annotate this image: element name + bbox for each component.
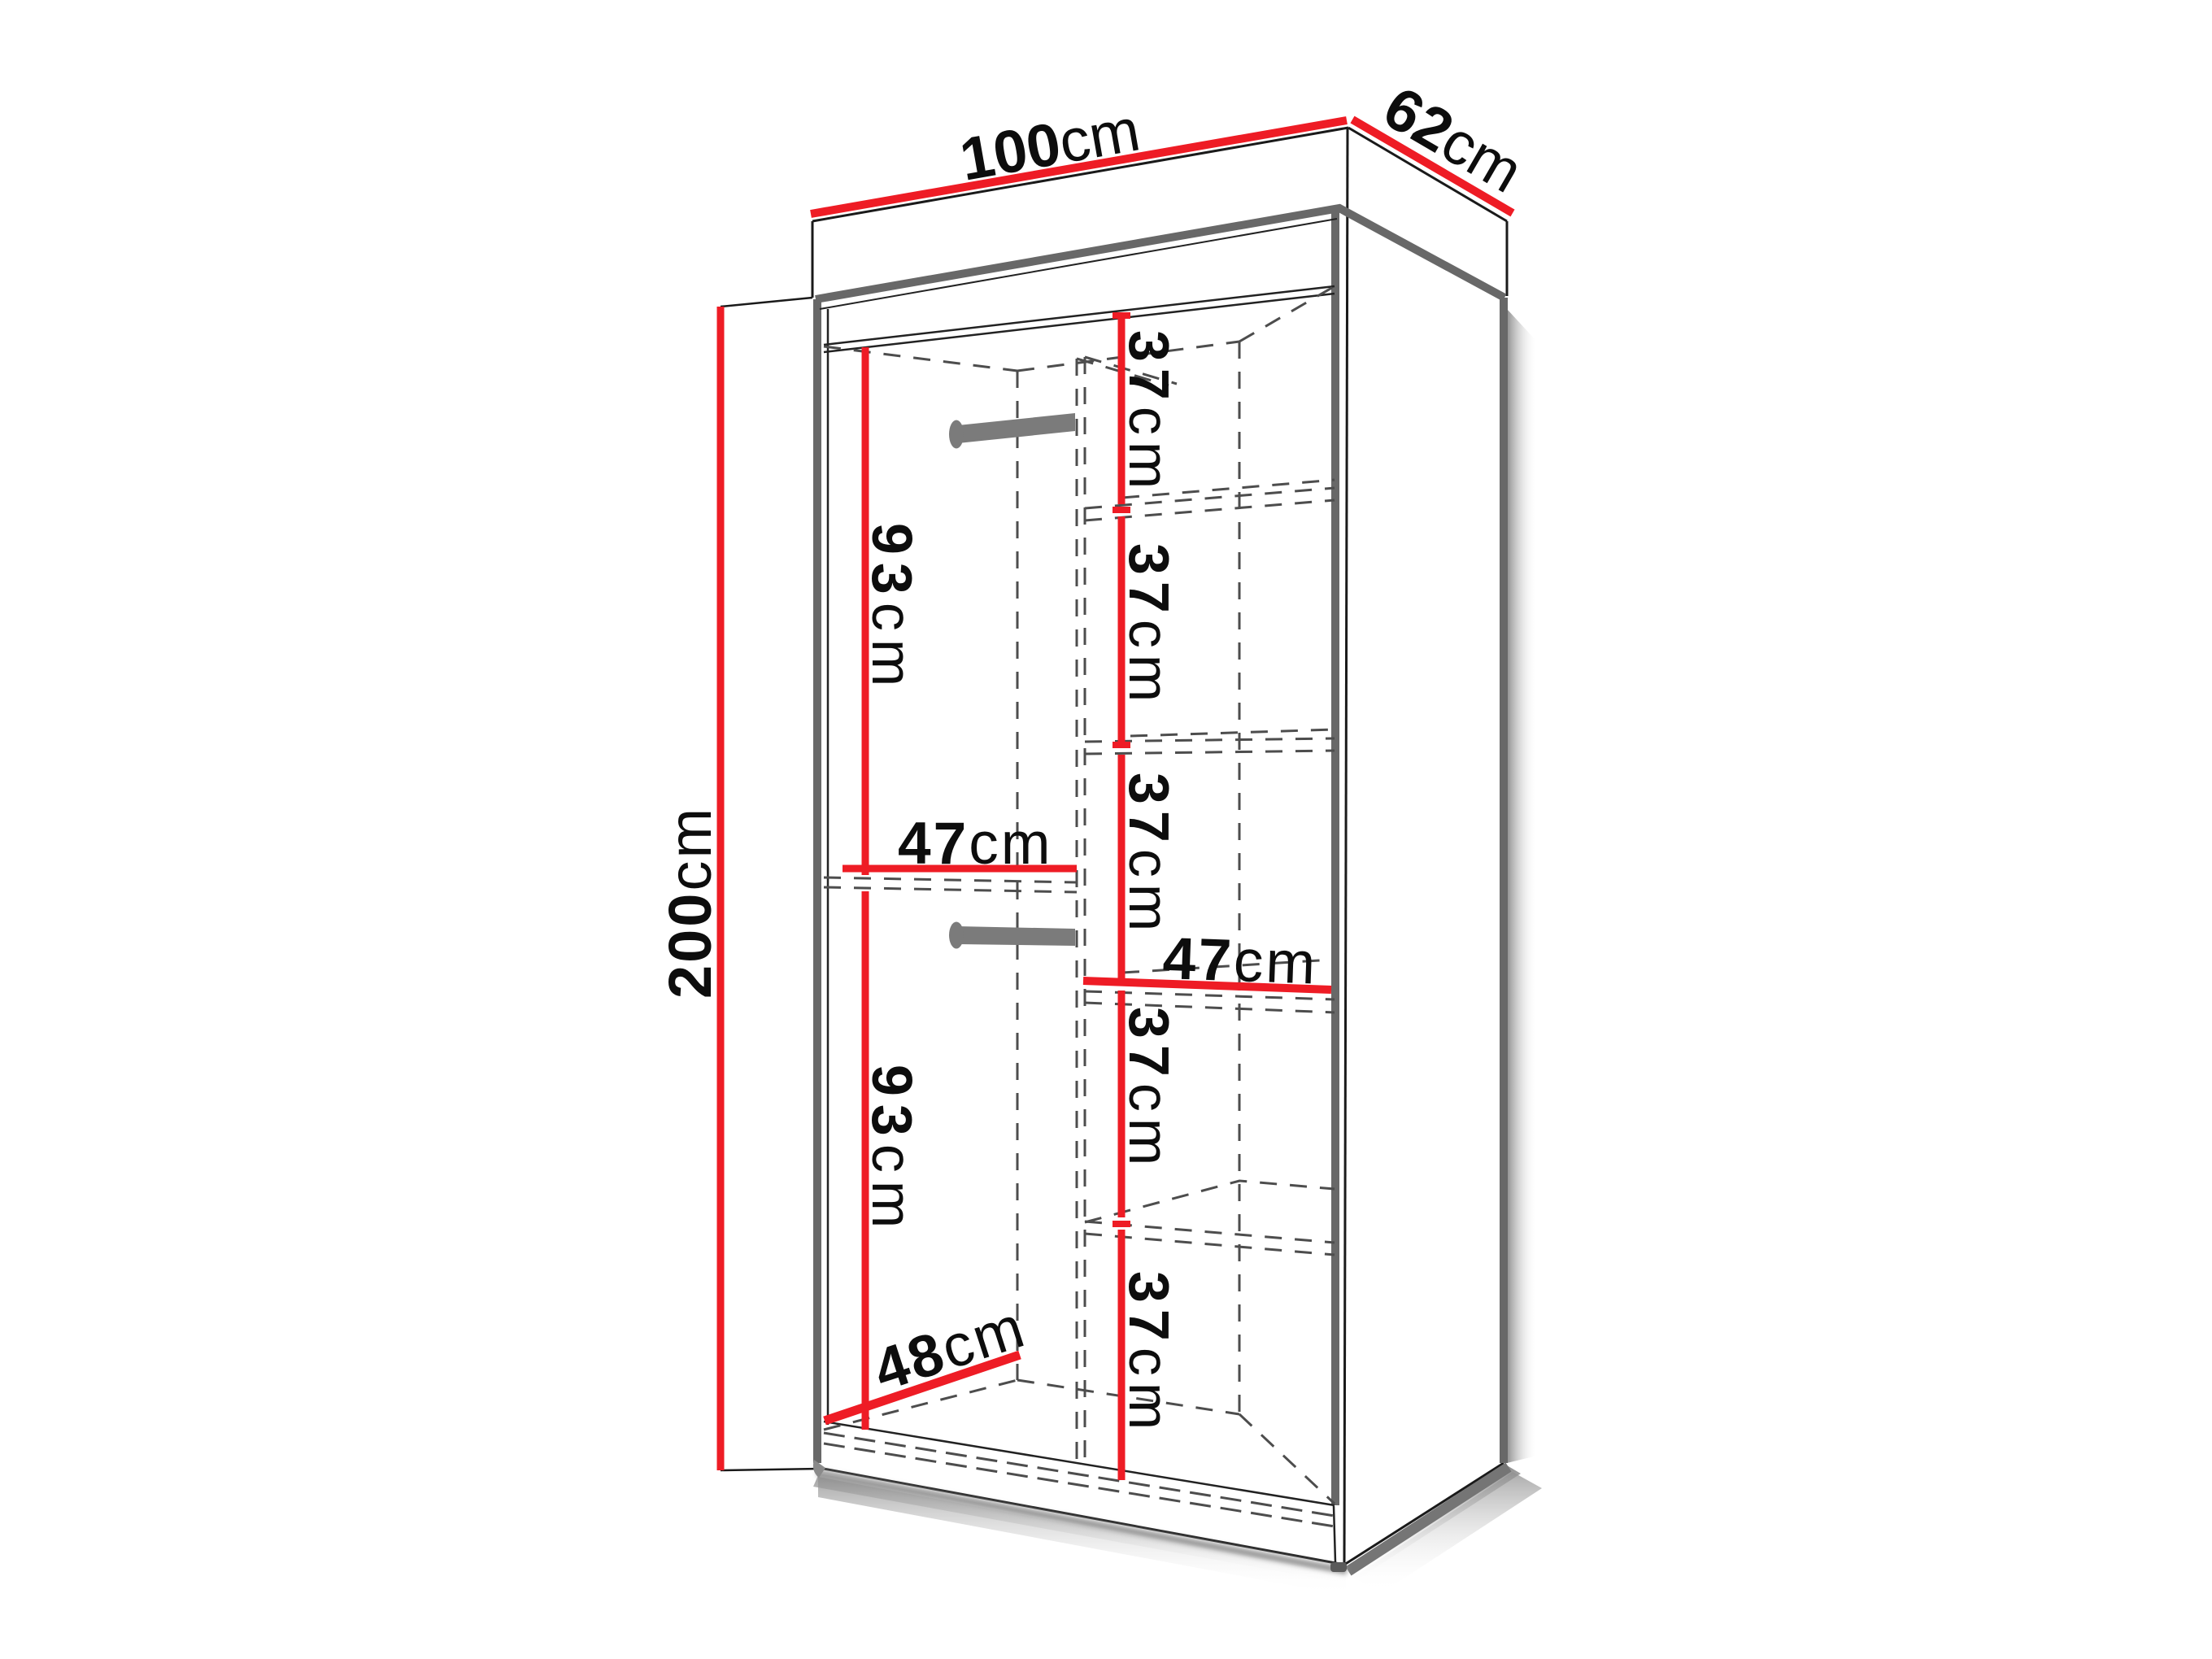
svg-text:37cm: 37cm	[1117, 543, 1181, 708]
svg-text:93cm: 93cm	[860, 1065, 924, 1236]
svg-text:200cm: 200cm	[656, 806, 724, 999]
svg-text:93cm: 93cm	[860, 523, 924, 695]
svg-text:37cm: 37cm	[1117, 1271, 1181, 1436]
svg-text:37cm: 37cm	[1117, 1007, 1181, 1172]
svg-text:47cm: 47cm	[1161, 925, 1318, 997]
svg-text:47cm: 47cm	[898, 811, 1053, 877]
svg-text:37cm: 37cm	[1117, 773, 1181, 938]
svg-text:37cm: 37cm	[1117, 330, 1181, 495]
